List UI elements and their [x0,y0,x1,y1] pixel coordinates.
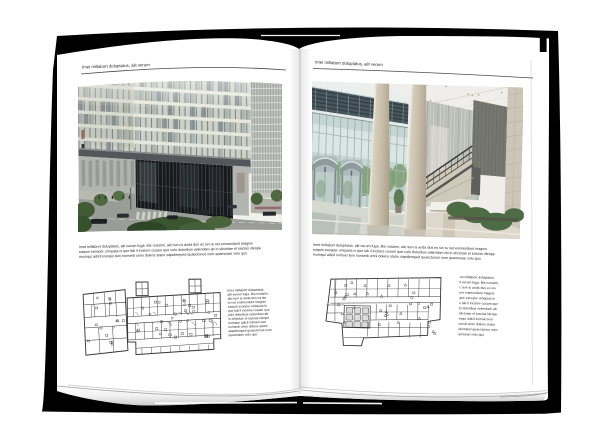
svg-text:net enimendunt magnis: net enimendunt magnis [459,291,495,296]
svg-text:nsedi omni dolens statur: nsedi omni dolens statur [459,322,497,327]
svg-text:mqui adicil inimaio tem: mqui adicil inimaio tem [459,317,494,322]
svg-text:ret millabort doluptatus,: ret millabort doluptatus, [460,275,495,280]
svg-text:lo doloribus velendam ab: lo doloribus velendam ab [459,306,497,311]
svg-text:quamusae volo quo: quamusae volo quo [228,332,257,337]
svg-text:c tem is anda dus es sin: c tem is anda dus es sin [459,285,496,290]
svg-text:amusae volo quo: amusae volo quo [458,332,484,337]
svg-text:que exceper umquias is: que exceper umquias is [459,296,495,301]
